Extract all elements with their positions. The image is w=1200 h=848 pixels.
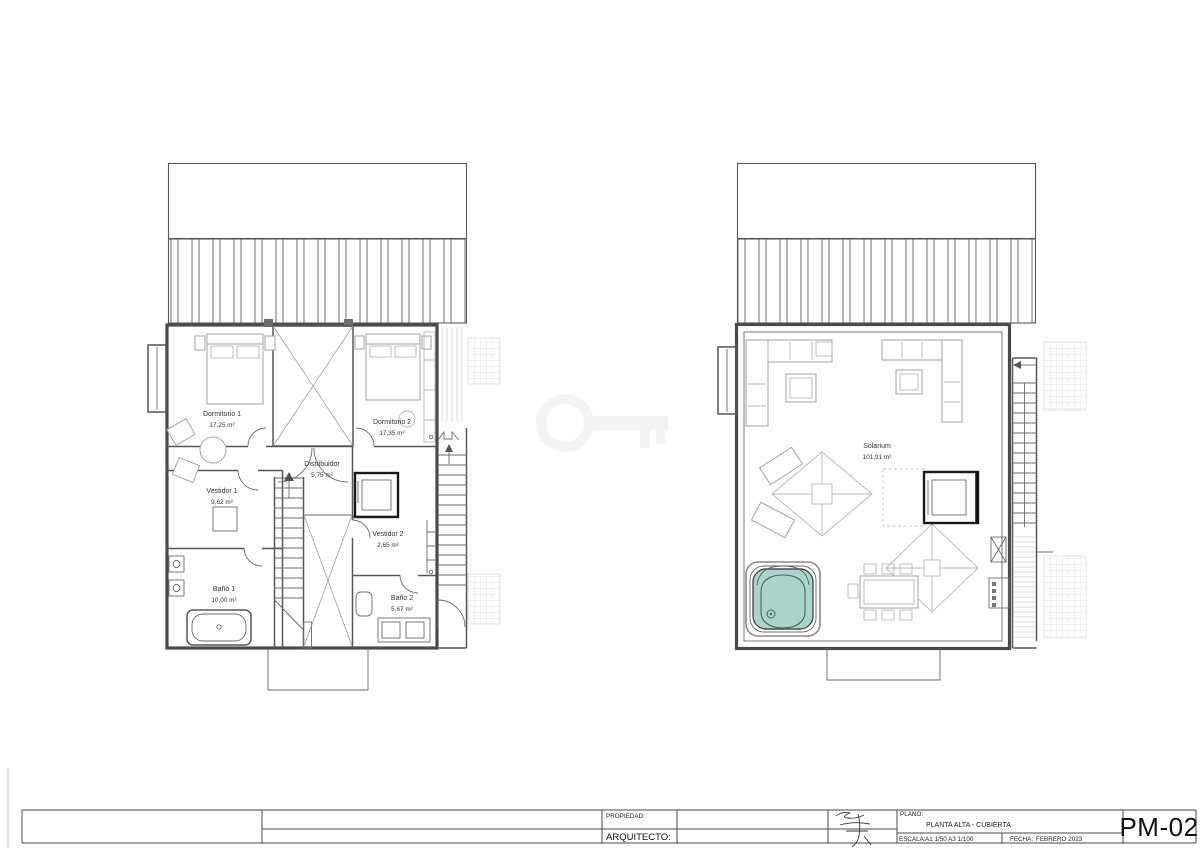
hot-tub-water <box>753 569 813 629</box>
window <box>148 345 166 412</box>
arrow-up-icon <box>445 444 453 452</box>
room-labels: Dormitorio 1 17,25 m² Dormitorio 2 17,35… <box>203 411 413 613</box>
shelf <box>213 507 237 531</box>
arrow-left-icon <box>1013 361 1021 369</box>
escala-value: A1 1/50 A3 1/100 <box>925 836 974 843</box>
floor-plan-drawing: Dormitorio 1 17,25 m² Dormitorio 2 17,35… <box>0 0 1200 848</box>
plan-cubierta: Solarium 101,91 m² <box>718 164 1086 681</box>
plano-label: PLANO: <box>900 811 923 818</box>
room-label-bano-2-area: 5,67 m² <box>391 606 413 613</box>
room-label-distribuidor-area: 5,75 m² <box>311 472 333 479</box>
room-labels: Solarium 101,91 m² <box>863 443 892 461</box>
arquitecto-label: ARQUITECTO: <box>606 832 671 843</box>
fecha-value: FEBRERO 2023 <box>1036 836 1083 843</box>
column <box>264 319 273 327</box>
hot-tub <box>746 562 820 636</box>
room-label-bano-1-name: Baño 1 <box>213 586 235 593</box>
fecha-label: FECHA: <box>1010 836 1033 843</box>
room-label-bano-2-name: Baño 2 <box>391 595 413 602</box>
room-label-dormitorio-2-name: Dormitorio 2 <box>373 419 411 426</box>
dining-table <box>848 564 918 620</box>
room-label-vestidor-1-area: 9,62 m² <box>211 499 233 506</box>
room-label-bano-1-area: 10,00 m² <box>211 597 236 604</box>
key-icon <box>541 399 668 448</box>
room-label-dormitorio-1-area: 17,25 m² <box>209 422 234 429</box>
window <box>718 347 736 414</box>
balcony-below-outline <box>268 649 368 691</box>
pergola-louvers <box>169 239 467 323</box>
room-label-vestidor-2-name: Vestidor 2 <box>372 531 403 538</box>
balcony-below-outline <box>827 649 940 681</box>
interior-staircase <box>275 472 353 648</box>
room-label-solarium-area: 101,91 m² <box>863 454 892 461</box>
wardrobe <box>427 520 435 573</box>
trellis-grid <box>468 574 500 624</box>
plano-value: PLANTA ALTA - CUBIERTA <box>926 822 1011 829</box>
elevator-shaft <box>883 469 978 526</box>
title-block: PROPIEDAD: ARQUITECTO: PLANO: PLANTA ALT… <box>22 810 1199 847</box>
pergola-louvers <box>738 239 1036 323</box>
escala-label: ESCALA: <box>899 836 926 843</box>
room-label-solarium-name: Solarium <box>863 443 891 450</box>
room-label-dormitorio-2-area: 17,35 m² <box>379 430 404 437</box>
trellis-grid <box>1044 556 1086 638</box>
trellis-grid <box>1044 342 1086 410</box>
roof-outline <box>738 164 1036 239</box>
plan-planta-alta: Dormitorio 1 17,25 m² Dormitorio 2 17,35… <box>148 164 500 691</box>
room-label-dormitorio-1-name: Dormitorio 1 <box>203 411 241 418</box>
bed-dormitorio-1 <box>195 334 275 404</box>
trellis-grid <box>468 338 500 384</box>
roof-outline <box>169 164 467 239</box>
bathroom1-sinks <box>169 556 184 596</box>
bathtub <box>187 610 251 645</box>
elevator-shaft <box>355 473 398 517</box>
void-cross <box>304 515 352 646</box>
room-label-vestidor-2-area: 2,65 m² <box>377 542 399 549</box>
sun-loungers <box>752 447 803 537</box>
room-label-vestidor-1-name: Vestidor 1 <box>206 488 237 495</box>
key-watermark <box>541 399 668 448</box>
sheet-code: PM-02 <box>1119 812 1198 842</box>
sofa-group-1 <box>746 340 832 426</box>
room-label-distribuidor-name: Distribuidor <box>304 461 340 468</box>
sofa-group-2 <box>882 340 962 422</box>
arrow-up-icon <box>284 472 294 481</box>
propiedad-label: PROPIEDAD: <box>606 813 645 820</box>
drawing-sheet: Dormitorio 1 17,25 m² Dormitorio 2 17,35… <box>0 0 1200 848</box>
architect-signature <box>836 812 871 847</box>
kitchenette <box>989 537 1009 608</box>
